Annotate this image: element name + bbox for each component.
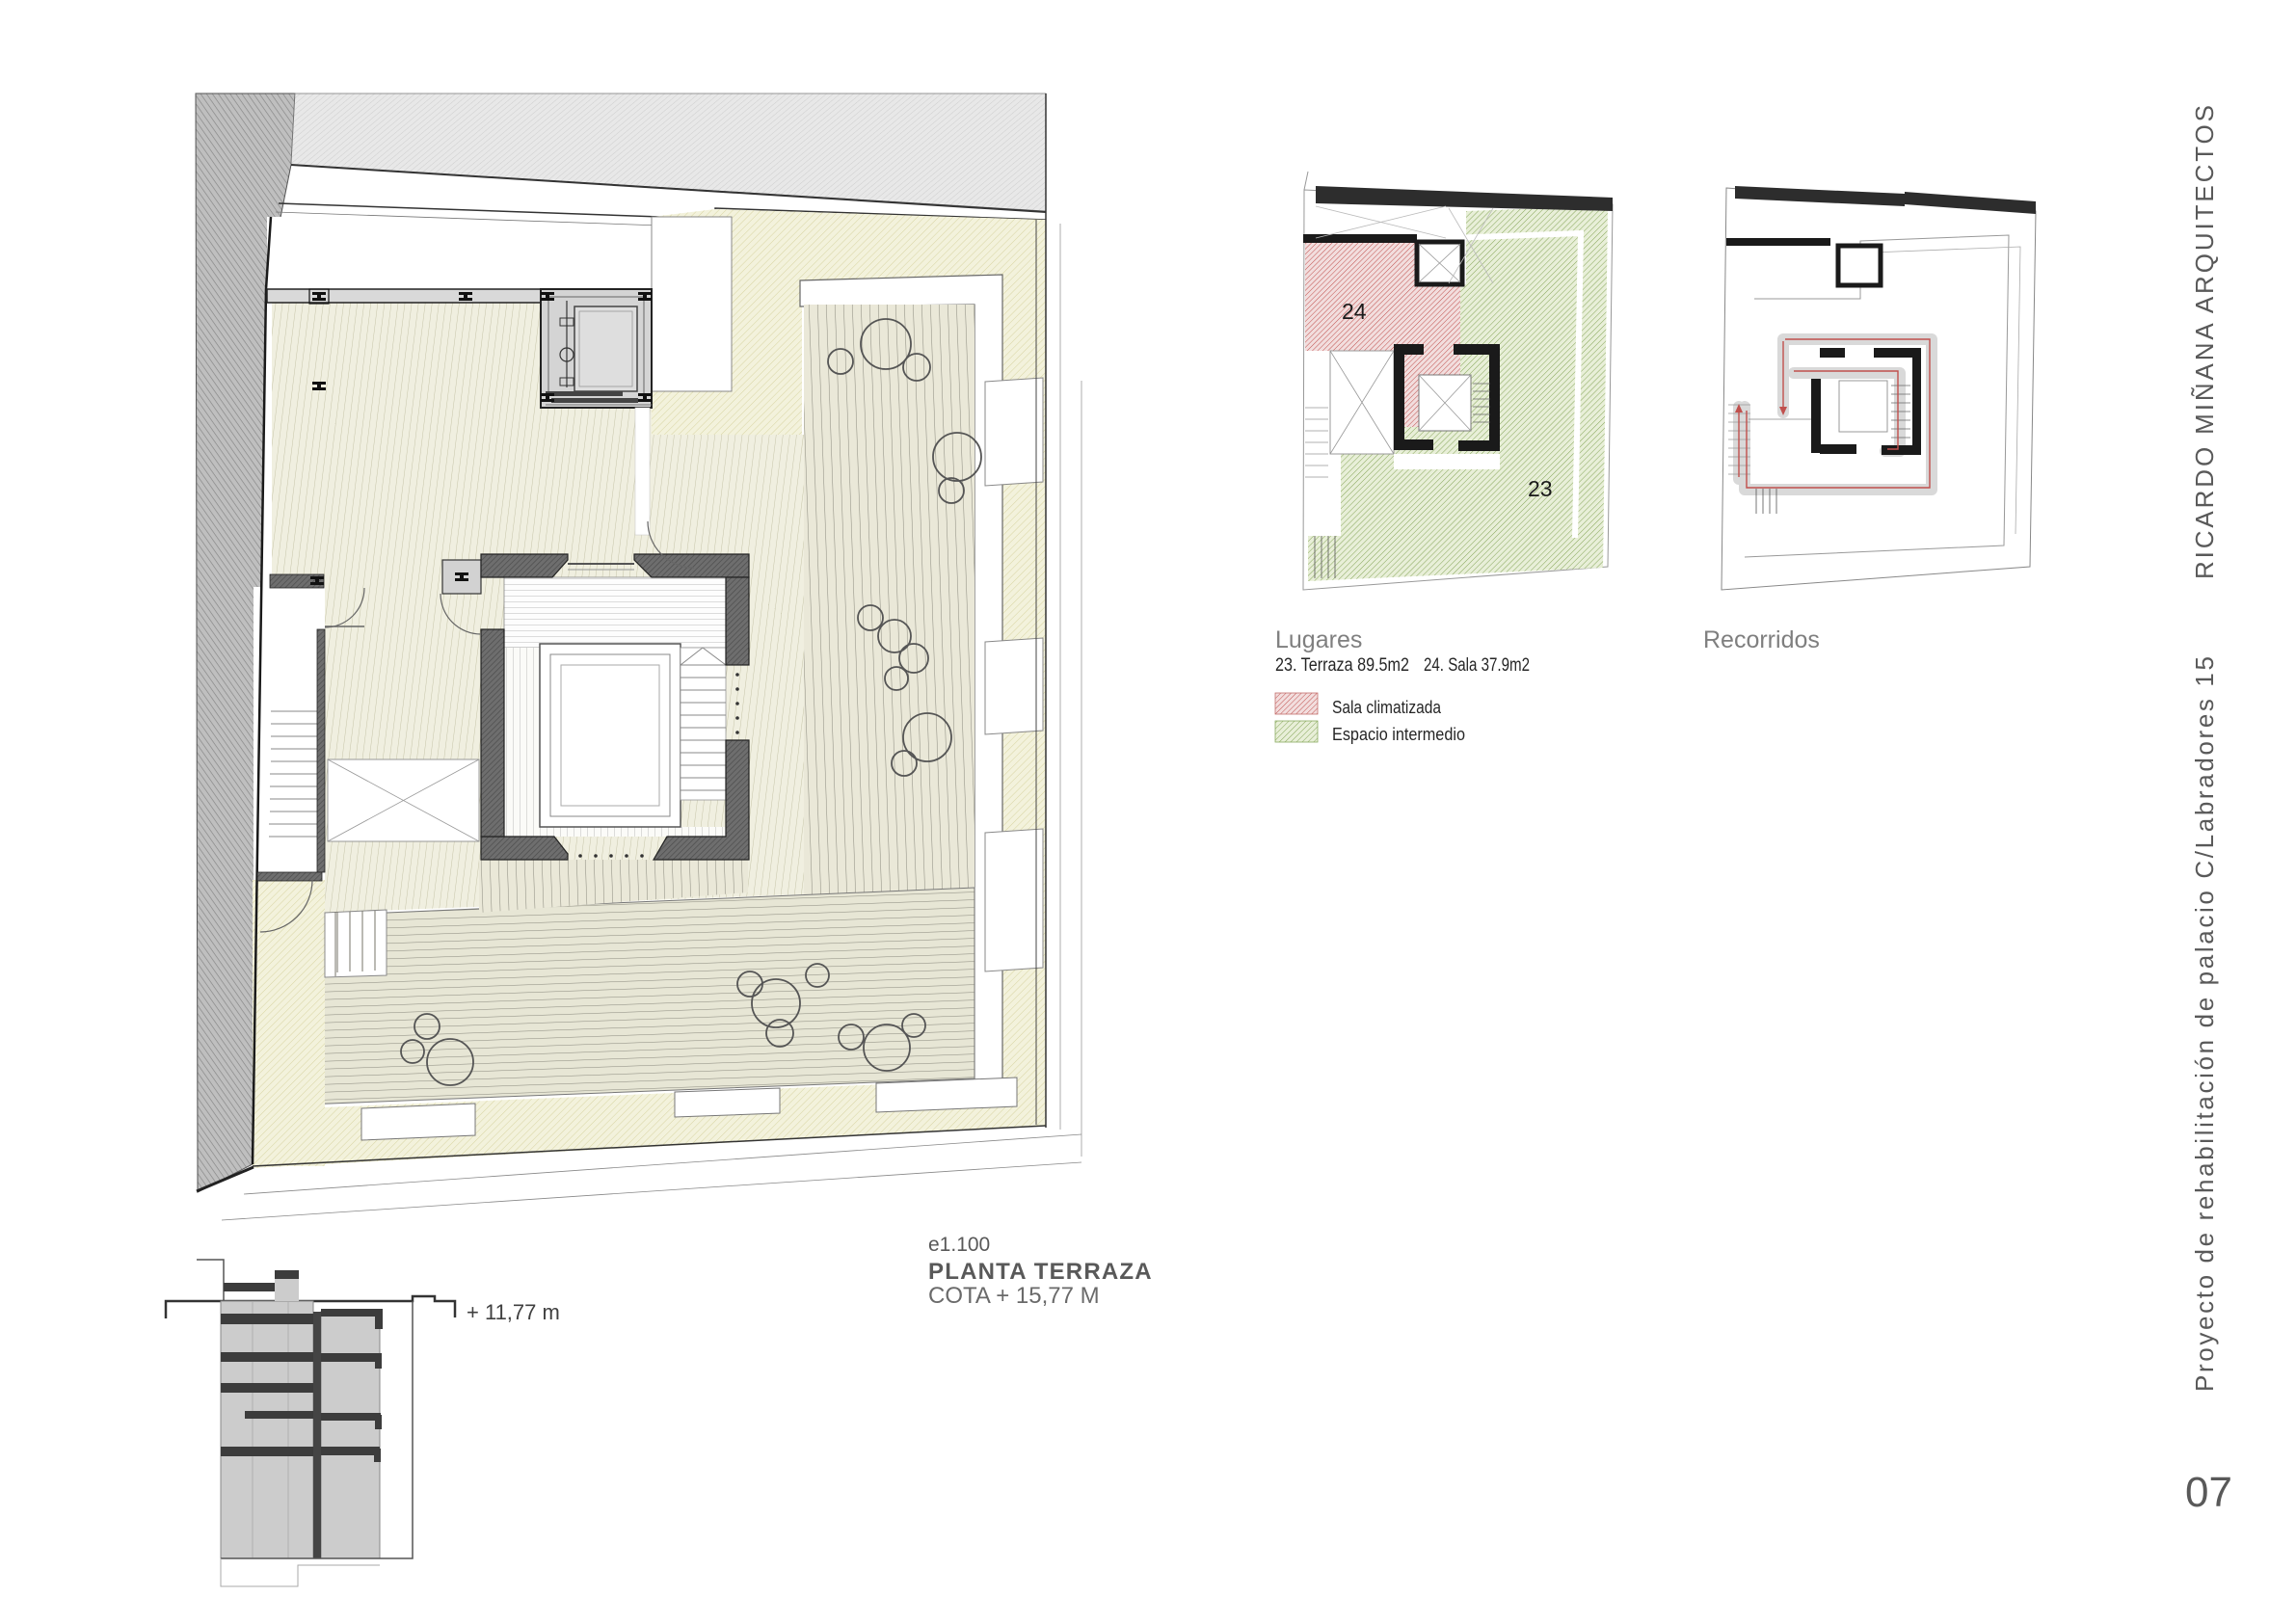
svg-text:Recorridos: Recorridos	[1703, 626, 1820, 653]
svg-text:23: 23	[1528, 476, 1553, 501]
svg-text:24: 24	[1342, 299, 1367, 324]
svg-text:Espacio intermedio: Espacio intermedio	[1332, 725, 1465, 744]
svg-text:Proyecto de rehabilitación de: Proyecto de rehabilitación de palacio C/…	[2190, 656, 2219, 1392]
svg-text:Lugares: Lugares	[1275, 626, 1362, 653]
svg-text:+ 11,77 m: + 11,77 m	[467, 1300, 560, 1324]
svg-text:23. Terraza 89.5m2: 23. Terraza 89.5m2	[1275, 655, 1409, 676]
svg-text:PLANTA TERRAZA: PLANTA TERRAZA	[928, 1259, 1153, 1285]
svg-text:e1.100: e1.100	[928, 1234, 990, 1256]
svg-text:07: 07	[2185, 1469, 2232, 1516]
svg-text:COTA + 15,77 M: COTA + 15,77 M	[928, 1283, 1100, 1309]
svg-text:24. Sala 37.9m2: 24. Sala 37.9m2	[1424, 655, 1530, 676]
svg-text:Sala climatizada: Sala climatizada	[1332, 698, 1442, 717]
